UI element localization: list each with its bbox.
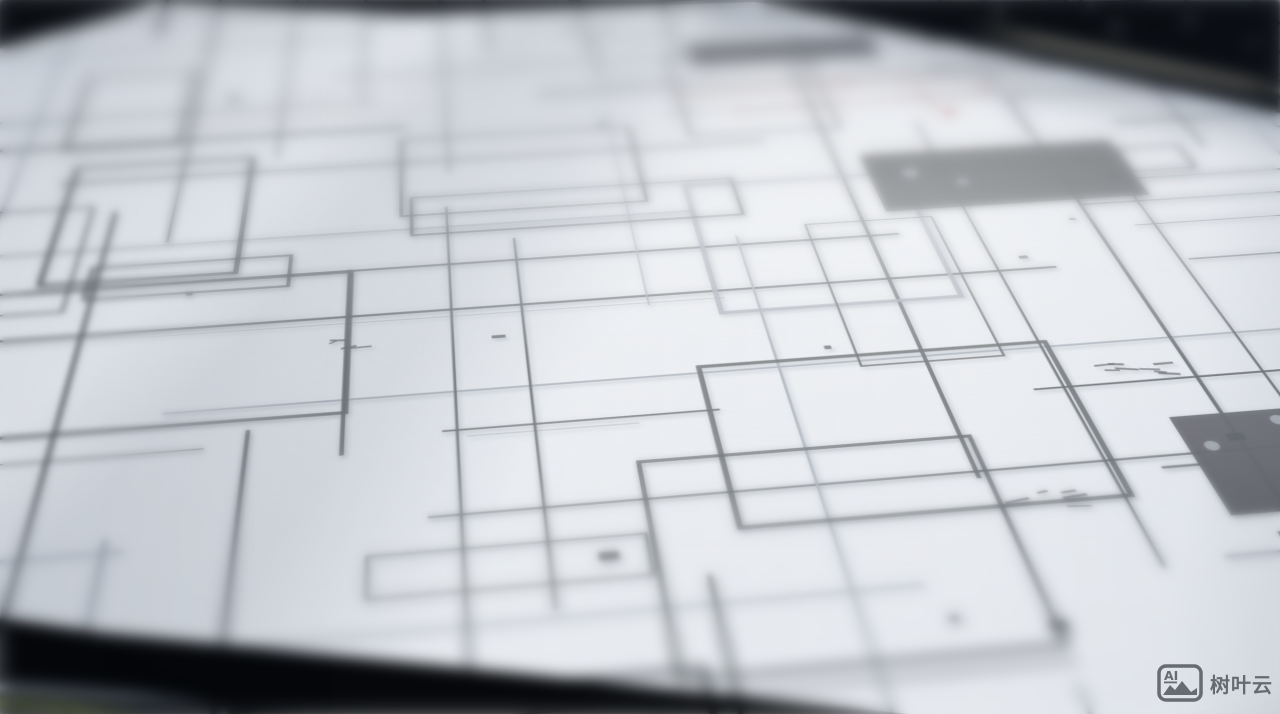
ai-picture-icon: AI (1157, 664, 1203, 702)
photo-stage: AI 树叶云 (0, 0, 1280, 714)
watermark-label: 树叶云 (1210, 669, 1273, 698)
bokeh-dot (1113, 25, 1120, 32)
watermark: AI 树叶云 (1157, 664, 1273, 702)
watermark-icon-text: AI (1164, 668, 1178, 683)
bokeh-dot (1186, 17, 1192, 23)
bokeh-dot (638, 32, 642, 36)
bokeh-dot (996, 10, 1002, 16)
bokeh-dot (1088, 5, 1092, 9)
bokeh-dot (1250, 40, 1255, 45)
